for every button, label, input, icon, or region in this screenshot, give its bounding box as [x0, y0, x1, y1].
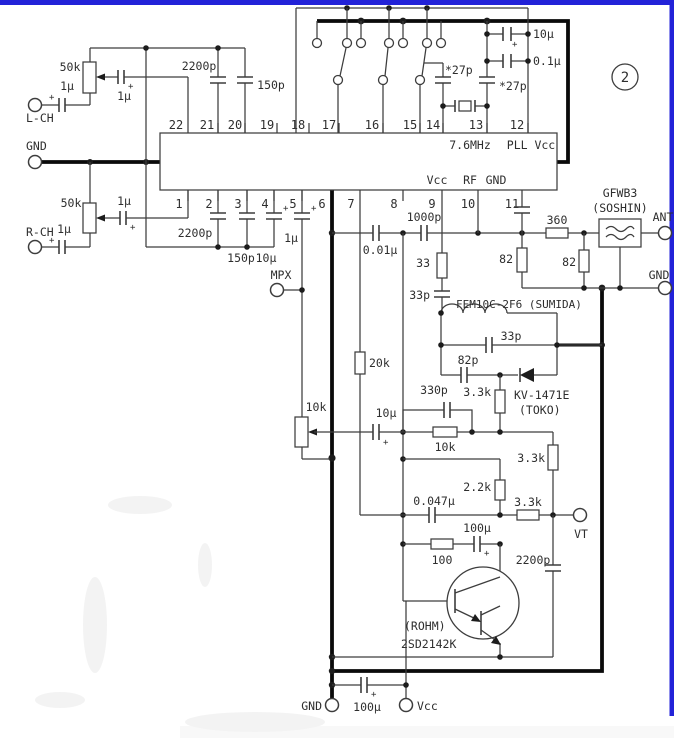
- tr-maker-label: (ROHM): [404, 619, 446, 633]
- cap-150p-p3-label: 150p: [227, 251, 255, 265]
- cap-33p-a-label: 33p: [409, 288, 430, 302]
- schematic-canvas: GND 22 21 20 19 18 17 16 15 14 13 12 1 2…: [0, 0, 674, 738]
- terminal-vcc-bottom: [400, 699, 413, 712]
- res-33k-right-label: 3.3k: [517, 451, 545, 465]
- output-buffer: (ROHM) 2SD2142K 2200p: [332, 515, 561, 660]
- switch-bank: [296, 5, 528, 133]
- schematic-page: GND 22 21 20 19 18 17 16 15 14 13 12 1 2…: [0, 0, 674, 738]
- tr-part-label: 2SD2142K: [401, 637, 456, 651]
- res-33k-diode-icon: [495, 390, 505, 413]
- terminal-mpx-label: MPX: [271, 268, 292, 282]
- varactor-maker-label: (TOKO): [519, 403, 561, 417]
- res-22k-label: 2.2k: [463, 480, 491, 494]
- plus-10u-pll: +: [512, 40, 518, 50]
- cap-100u-mid-label: 100μ: [463, 521, 491, 535]
- cap-001u-label: 0.01μ: [363, 243, 398, 257]
- cap-10u-p4-label: 10μ: [256, 251, 277, 265]
- filter-maker-label: (SOSHIN): [592, 201, 647, 215]
- svg-text:+: +: [371, 690, 377, 700]
- res-82b-label: 82: [562, 255, 576, 269]
- res-360-icon: [546, 228, 568, 238]
- crystal-icon: [459, 101, 471, 111]
- res-100-label: 100: [432, 553, 453, 567]
- res-82a-icon: [517, 248, 527, 272]
- cap-01u-pll-label: 0.1μ: [533, 54, 561, 68]
- svg-text:+: +: [383, 438, 389, 448]
- res-100-icon: [431, 539, 453, 549]
- ic-xtal-freq: 7.6MHz: [449, 138, 491, 152]
- filter-name-label: GFWB3: [603, 186, 638, 200]
- svg-text:+: +: [283, 204, 289, 214]
- ic-vcc: Vcc: [427, 173, 448, 187]
- terminal-gnd-bottom-label: GND: [301, 699, 322, 713]
- cap-2200p-p2-label: 2200p: [178, 226, 213, 240]
- terminal-vt: [574, 509, 587, 522]
- ic-rf: RF: [463, 173, 477, 187]
- cap-10u-pll-label: 10μ: [533, 27, 554, 41]
- page-number-badge: 2: [612, 64, 638, 90]
- ic-pll-vcc: PLL Vcc: [507, 138, 555, 152]
- res-33k-right-icon: [548, 445, 558, 470]
- res-10k-label: 10k: [435, 440, 456, 454]
- svg-text:1: 1: [175, 197, 182, 211]
- ic-pin-numbers-bottom: 1 2 3 4 5 6 7 8 9 10 11: [175, 197, 519, 211]
- xtal-cap-left-label: *27p: [445, 63, 473, 77]
- tank-circuit: FEM10C-2F6 (SUMIDA) 33p 82p KV-1471E (TO…: [438, 298, 602, 432]
- varactor-icon: [520, 368, 534, 382]
- res-22k-icon: [495, 480, 505, 500]
- rf-output-rail: 0.01μ 1000p 33 360 82 82 GFWB3 (SOSHIN) …: [332, 186, 673, 313]
- svg-text:16: 16: [365, 118, 379, 132]
- cap-1000p-label: 1000p: [407, 210, 442, 224]
- cap-r-in-label: 1μ: [57, 222, 71, 236]
- svg-text:14: 14: [426, 118, 440, 132]
- pot-10k-label: 10k: [306, 400, 327, 414]
- res-33k-vt-icon: [517, 510, 539, 520]
- pot-r-label: 50k: [61, 196, 82, 210]
- svg-text:10: 10: [461, 197, 475, 211]
- pot-r-icon: [83, 203, 96, 233]
- terminal-lch: [29, 99, 42, 112]
- terminal-rch: [29, 241, 42, 254]
- cap-r-wiper-label: 1μ: [117, 194, 131, 208]
- svg-text:11: 11: [505, 197, 519, 211]
- terminal-gnd-bottom: [326, 699, 339, 712]
- svg-text:17: 17: [322, 118, 336, 132]
- terminal-gnd-right-label: GND: [649, 268, 670, 282]
- svg-text:3: 3: [234, 197, 241, 211]
- svg-text:8: 8: [390, 197, 397, 211]
- svg-text:+: +: [49, 93, 55, 103]
- pot-10k-icon: [295, 417, 308, 447]
- varactor-name-label: KV-1471E: [514, 388, 569, 402]
- terminal-mpx: [271, 284, 284, 297]
- terminal-gnd-left: [29, 156, 42, 169]
- svg-text:2: 2: [621, 70, 629, 86]
- cap-82p-label: 82p: [458, 353, 479, 367]
- svg-text:5: 5: [289, 197, 296, 211]
- svg-text:7: 7: [347, 197, 354, 211]
- cap-33p-b-label: 33p: [501, 329, 522, 343]
- pot-l-icon: [83, 62, 96, 93]
- terminal-vt-label: VT: [574, 527, 588, 541]
- res-33-label: 33: [416, 256, 430, 270]
- cap-100u-bot-label: 100μ: [353, 700, 381, 714]
- svg-text:13: 13: [469, 118, 483, 132]
- filter-gfwb3-icon: [599, 219, 641, 247]
- top-border: [0, 0, 674, 5]
- svg-text:18: 18: [291, 118, 305, 132]
- svg-text:6: 6: [318, 197, 325, 211]
- res-33-icon: [437, 253, 447, 278]
- cap-2200p-top-label: 2200p: [182, 59, 217, 73]
- cap-1u-p5-label: 1μ: [284, 231, 298, 245]
- right-border: [670, 0, 674, 716]
- pot-l-label: 50k: [60, 60, 81, 74]
- xtal-cap-right-label: *27p: [499, 79, 527, 93]
- svg-text:19: 19: [260, 118, 274, 132]
- res-10k-icon: [433, 427, 457, 437]
- svg-text:12: 12: [510, 118, 524, 132]
- terminal-gnd-right: [659, 282, 672, 295]
- svg-text:+: +: [130, 223, 136, 233]
- cap-l-in-label: 1μ: [60, 79, 74, 93]
- terminal-rch-label: R-CH: [26, 225, 54, 239]
- res-33k-diode-label: 3.3k: [463, 385, 491, 399]
- svg-text:21: 21: [200, 118, 214, 132]
- res-82b-icon: [579, 250, 589, 272]
- res-360-label: 360: [547, 213, 568, 227]
- ic-body: 22 21 20 19 18 17 16 15 14 13 12 1 2 3 4…: [160, 118, 557, 211]
- cap-0047u-label: 0.047μ: [413, 494, 455, 508]
- af-level-pot: 10k: [295, 400, 330, 459]
- svg-text:22: 22: [169, 118, 183, 132]
- res-33k-vt-label: 3.3k: [514, 495, 542, 509]
- terminal-gnd-left-label: GND: [26, 139, 47, 153]
- inductor-label: FEM10C-2F6 (SUMIDA): [456, 298, 582, 311]
- ic-gnd: GND: [486, 173, 507, 187]
- svg-text:20: 20: [228, 118, 242, 132]
- svg-text:9: 9: [428, 197, 435, 211]
- cap-10u-af-label: 10μ: [376, 406, 397, 420]
- cap-2200p-bot-label: 2200p: [516, 553, 551, 567]
- svg-text:2: 2: [205, 197, 212, 211]
- terminal-ant: [659, 227, 672, 240]
- cap-330p-label: 330p: [420, 383, 448, 397]
- terminal-ant-label: ANT: [653, 210, 674, 224]
- ic-pin-numbers-top: 22 21 20 19 18 17 16 15 14 13 12: [169, 118, 524, 132]
- terminal-vcc-bottom-label: Vcc: [417, 699, 438, 713]
- svg-text:15: 15: [403, 118, 417, 132]
- cap-l-wiper-label: 1μ: [117, 89, 131, 103]
- terminal-lch-label: L-CH: [26, 111, 54, 125]
- res-20k-icon: [355, 352, 365, 374]
- transistor-icon: [447, 567, 519, 639]
- gnd-left-terminal: GND: [26, 139, 47, 169]
- svg-text:+: +: [311, 204, 317, 214]
- res-82a-label: 82: [499, 252, 513, 266]
- res-20k-label: 20k: [369, 356, 390, 370]
- svg-text:+: +: [484, 549, 490, 559]
- svg-text:4: 4: [261, 197, 268, 211]
- cap-150p-top-label: 150p: [257, 78, 285, 92]
- crystal-circuit: + 10μ 0.1μ *27p *27p: [424, 21, 561, 133]
